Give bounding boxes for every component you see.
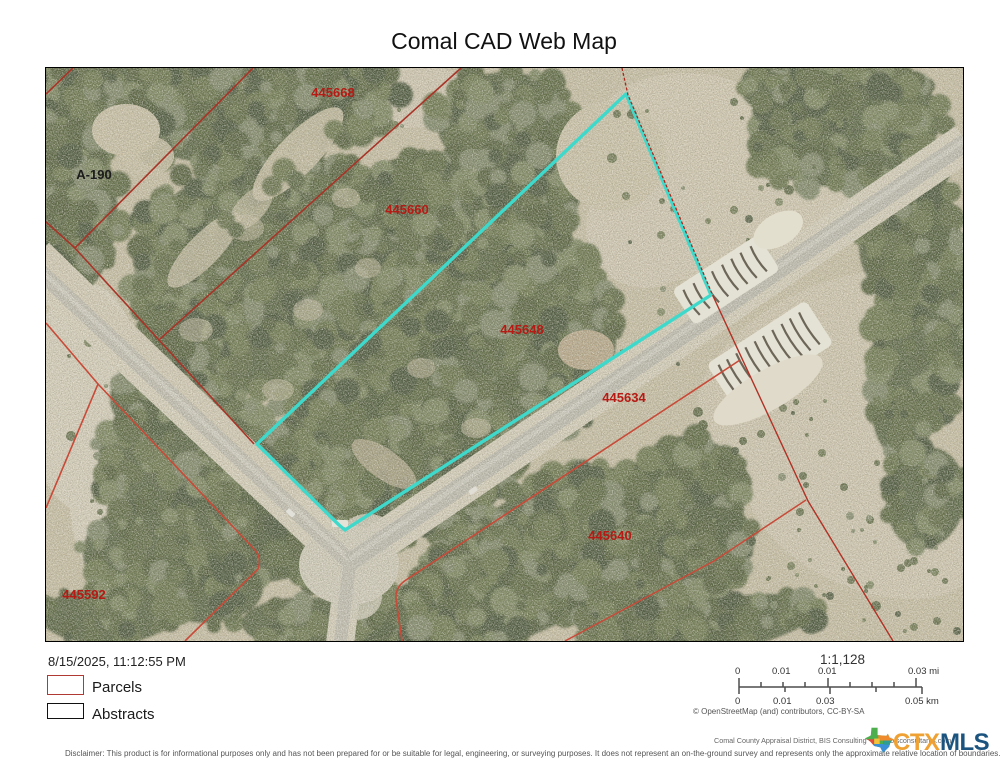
- svg-text:445634: 445634: [602, 390, 646, 405]
- svg-text:0.03: 0.03: [816, 696, 835, 706]
- svg-text:445592: 445592: [62, 587, 105, 602]
- svg-text:A-190: A-190: [76, 167, 111, 182]
- svg-text:0.01: 0.01: [818, 666, 837, 677]
- svg-text:0: 0: [735, 696, 740, 706]
- svg-text:445648: 445648: [500, 322, 543, 337]
- svg-text:0: 0: [735, 666, 740, 677]
- svg-text:0.05 km: 0.05 km: [905, 696, 939, 706]
- svg-text:0.01: 0.01: [773, 696, 792, 706]
- svg-text:0.03 mi: 0.03 mi: [908, 666, 939, 677]
- svg-text:CTX: CTX: [893, 729, 940, 756]
- svg-text:0.01: 0.01: [772, 666, 791, 677]
- svg-text:445668: 445668: [311, 85, 354, 100]
- svg-text:MLS: MLS: [940, 729, 990, 756]
- svg-text:445660: 445660: [385, 202, 428, 217]
- svg-text:445640: 445640: [588, 528, 631, 543]
